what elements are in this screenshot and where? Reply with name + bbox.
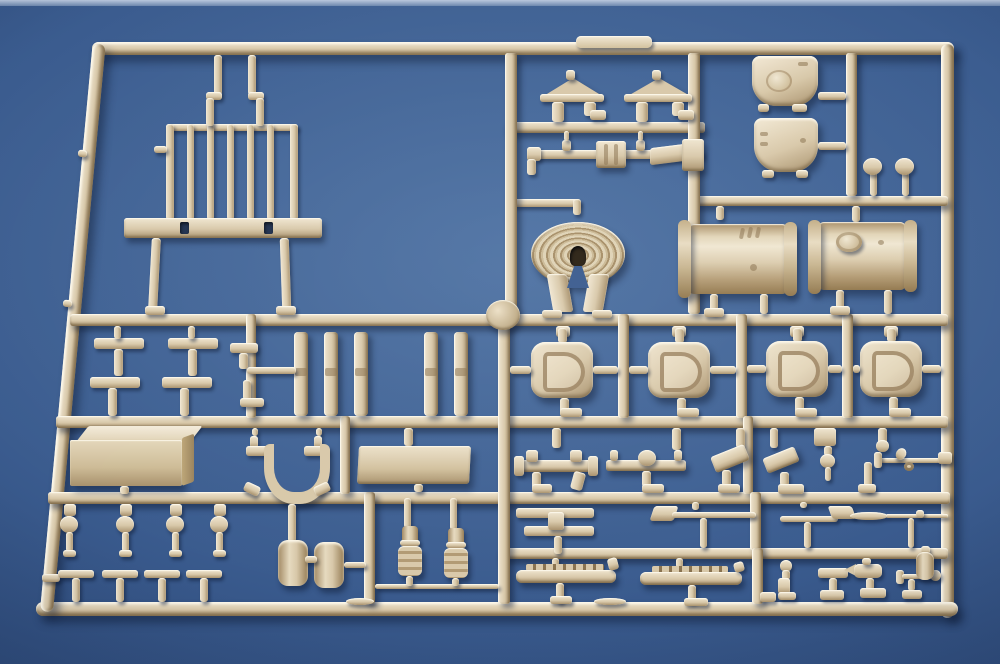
panel-bolt — [760, 142, 768, 146]
coiled-cable-reel — [530, 214, 628, 318]
roof-bracket-leg — [552, 102, 564, 122]
nozzle-fitting — [850, 562, 890, 604]
tank-rim — [678, 220, 691, 298]
rack-hook — [733, 561, 745, 573]
sprue-foot — [830, 306, 850, 315]
rack-body — [640, 572, 742, 585]
sprue-frame-top — [92, 42, 954, 55]
small-canister — [916, 546, 938, 586]
cover-d-ring — [778, 351, 820, 391]
roof-bracket-chimney — [566, 70, 575, 80]
cover-d-ring — [660, 352, 702, 392]
sprue-stub — [908, 518, 914, 548]
tee-pin-bar — [144, 570, 180, 578]
sprue-stub — [922, 365, 941, 373]
shovel-tool — [652, 508, 762, 552]
pin-shaft — [172, 532, 179, 552]
sprue-stub — [252, 428, 258, 436]
sprue-stub — [804, 522, 811, 548]
crank-rod — [880, 458, 946, 463]
toothed-rack-bar — [516, 564, 626, 608]
pin-shaft — [122, 532, 129, 552]
d-shaped-hatch-cover — [860, 341, 922, 421]
tee-pin — [58, 570, 94, 604]
sprue-stub — [793, 328, 802, 342]
nozzle-body — [854, 564, 882, 578]
roof-bracket-step — [590, 110, 606, 120]
sprue-stub — [120, 486, 129, 494]
fitting-foot — [778, 592, 796, 600]
sprue-stub — [316, 428, 322, 436]
t-lever-bar — [162, 377, 212, 388]
tee-pin-stem — [116, 578, 124, 602]
sprue-stub — [770, 428, 778, 448]
tank-rim — [808, 220, 821, 294]
pin-tip — [119, 550, 132, 557]
runner-v-divider — [498, 314, 510, 604]
runner-v-d3 — [842, 314, 853, 418]
sprue-foot — [778, 484, 804, 494]
mushroom-pin-stem — [902, 172, 909, 196]
coil-foot — [592, 310, 612, 318]
shovel-tool — [780, 506, 858, 550]
panel-foot — [796, 170, 808, 178]
shackle-foot — [243, 481, 262, 497]
sprue-rod — [344, 562, 366, 568]
handrail-sprue-arm — [256, 98, 264, 126]
roof-bracket-step — [678, 110, 694, 120]
roof-bracket-eaves — [624, 94, 692, 102]
sprue-foot — [889, 408, 911, 417]
tank-filler-cap — [836, 232, 862, 252]
sprue-stub — [450, 498, 457, 530]
pin-bracket — [120, 504, 132, 516]
tank-body — [688, 224, 788, 294]
handrail-bar — [290, 124, 298, 220]
stowage-box-front — [70, 440, 182, 486]
runner-h-topmid — [505, 122, 705, 133]
fitting-base — [902, 590, 922, 599]
mushroom-pin-head — [895, 158, 914, 175]
sprue-stub — [510, 366, 531, 374]
tee-pin-stem — [200, 578, 208, 602]
manifold-boss — [570, 450, 582, 462]
sprue-stub — [828, 365, 842, 373]
canister-body — [916, 552, 934, 580]
shock-absorber-lower — [444, 548, 468, 578]
link-strut-step — [325, 368, 337, 376]
manifold-dome — [638, 450, 656, 466]
mushroom-pin-head — [863, 158, 882, 175]
sprue-stub — [852, 206, 860, 222]
runner-v-mid-top — [505, 53, 517, 314]
valve-manifold — [518, 446, 602, 496]
small-drum — [278, 540, 308, 586]
link-strut-step — [425, 368, 437, 376]
tow-shackle — [246, 434, 330, 498]
angled-bracket — [762, 446, 800, 474]
pin-bracket — [214, 504, 226, 516]
small-drum — [314, 542, 344, 588]
curved-stowage-panel — [754, 116, 854, 182]
pin-shaft — [216, 532, 223, 552]
sprue-stub — [747, 365, 766, 373]
handrail-foot-board — [124, 218, 322, 238]
sprue-stub — [404, 498, 411, 528]
tank-rim — [904, 220, 917, 292]
fitting-base — [860, 588, 886, 598]
tee-pin-bar — [102, 570, 138, 578]
sprue-stub — [114, 326, 121, 339]
cover-d-ring — [543, 352, 585, 392]
t-lever-bar — [230, 343, 258, 353]
periscope-fitting — [778, 560, 798, 608]
rack-body — [516, 570, 616, 583]
toothed-rack-bar — [640, 566, 752, 610]
sprue-foot — [858, 484, 876, 493]
handrail-sprue-arm — [214, 55, 222, 95]
sprue-stub — [716, 206, 724, 220]
panel-foot — [758, 104, 769, 112]
t-lever-bar — [90, 377, 140, 388]
sprue-foot — [240, 398, 264, 407]
sprue-stub — [884, 290, 892, 314]
panel-bolt — [760, 132, 768, 136]
sprue-stub — [188, 326, 195, 339]
tee-pin-stem — [158, 578, 166, 602]
panel-dot — [800, 138, 806, 143]
tee-pin-bar — [186, 570, 222, 578]
manifold-post — [674, 450, 682, 461]
molded-label-tab — [576, 36, 652, 48]
sprue-stub — [593, 366, 618, 374]
sprue-foot — [684, 598, 708, 606]
pin-ball — [60, 516, 78, 533]
pin-ball — [210, 516, 228, 533]
sprue-stub — [818, 92, 846, 100]
tank-dot — [878, 240, 884, 245]
cover-d-ring — [872, 351, 914, 391]
crank-elbow — [874, 452, 882, 468]
runner-h-pinrail — [690, 196, 948, 206]
sprue-gate-bump — [346, 598, 374, 605]
tank-rim — [784, 222, 797, 296]
ball-head-pin — [212, 504, 232, 560]
sprue-foot — [560, 408, 582, 417]
crank-ring — [904, 462, 914, 471]
shovel-shaft — [672, 512, 756, 518]
nozzle-top — [862, 558, 871, 565]
valve-manifold — [606, 448, 694, 496]
d-shaped-hatch-cover — [531, 342, 593, 422]
handrail-bar — [207, 124, 214, 220]
tapered-pin-shaft — [825, 467, 831, 481]
t-lever-bar — [94, 338, 144, 349]
sprue-stub — [573, 199, 581, 215]
tee-pin-bar — [58, 570, 94, 578]
sprue-stub — [700, 518, 707, 548]
handrail-bar — [267, 124, 274, 220]
handrail-leg — [148, 238, 161, 310]
tee-pin-stem — [72, 578, 80, 602]
sprue-stub — [414, 484, 423, 492]
sprue-stub — [887, 328, 896, 342]
sprue-stub — [243, 380, 251, 400]
manifold-boss — [526, 450, 538, 462]
roof-bracket-eaves — [540, 94, 604, 102]
sprue-stub — [675, 328, 684, 343]
axle-rod-end-block — [682, 139, 704, 171]
tank-dot — [750, 264, 757, 271]
sprue-stub — [406, 576, 413, 586]
axle-rod-end-drop — [527, 159, 536, 175]
sprue-stub — [452, 578, 459, 586]
axle-rod-center-block — [596, 141, 626, 168]
backdrop-top-edge — [0, 0, 1000, 6]
sprue-foot — [642, 484, 664, 493]
d-shaped-hatch-cover — [648, 342, 710, 422]
sprue-foot — [795, 408, 817, 417]
pedal-assembly — [514, 506, 598, 554]
tee-pin — [102, 570, 138, 604]
sprue-nub — [78, 150, 88, 158]
sprue-frame-bottom — [36, 602, 958, 616]
pin-shaft — [66, 532, 73, 552]
link-strut-step — [295, 368, 307, 376]
t-lever-stem — [108, 388, 117, 416]
handrail-leg — [280, 238, 292, 310]
tank-body — [818, 222, 906, 290]
handrail-bar — [187, 124, 194, 220]
sprue-block — [814, 428, 836, 446]
sprue-stub — [818, 142, 846, 150]
runner-v-d1 — [618, 314, 629, 418]
handrail-bar — [227, 124, 234, 220]
manifold-cap — [588, 456, 598, 476]
t-lever-bar — [168, 338, 218, 349]
sprue-stub — [305, 556, 317, 563]
sprue-stub — [558, 328, 567, 343]
pin-bracket — [64, 504, 76, 516]
sprue-nub — [63, 300, 73, 308]
fuel-tank — [678, 218, 800, 322]
sprue-rod — [375, 584, 499, 589]
pin-tip — [213, 550, 226, 557]
shovel-shaft — [780, 516, 838, 522]
ball-head-pin — [168, 504, 188, 560]
round-knockout-disc — [486, 300, 520, 330]
sprue-stub — [552, 428, 561, 448]
sprue-foot — [760, 592, 776, 602]
crank-cap — [876, 440, 889, 452]
fitting-base — [820, 590, 844, 600]
link-strut-step — [455, 368, 467, 376]
runner-v-left-b — [340, 416, 350, 494]
handrail-sprue-arm — [206, 98, 214, 126]
sprue-rod — [247, 367, 296, 374]
sprue-stub — [710, 366, 736, 374]
pin-ball — [116, 516, 134, 533]
pin-tip — [63, 550, 76, 557]
handrail-bar — [166, 124, 174, 220]
panel-disc — [766, 70, 792, 92]
handrail-sprue-arm — [248, 55, 256, 95]
tee-pin — [144, 570, 180, 604]
pin-ball — [166, 516, 184, 533]
link-strut-step — [355, 368, 367, 376]
crank-lug — [938, 452, 952, 464]
d-shaped-hatch-cover — [766, 341, 828, 421]
axle-rod-knob — [636, 140, 645, 151]
axle-block-ridge — [604, 144, 608, 165]
sprue-stub — [760, 294, 768, 314]
coil-foot — [542, 310, 562, 318]
sprue-foot — [532, 484, 552, 493]
panel-foot — [792, 104, 807, 112]
t-lever-stem — [180, 388, 189, 416]
sprue-stub — [570, 471, 586, 491]
sprue-foot — [718, 484, 740, 493]
sprue-foot — [704, 308, 724, 317]
axle-rod-knob — [562, 140, 571, 151]
handrail-side-stub — [154, 146, 167, 153]
ball-head-pin — [118, 504, 138, 560]
foot-board-slot — [264, 222, 273, 234]
tee-pin — [186, 570, 222, 604]
coil-keyhole — [570, 246, 586, 266]
sprue-stub — [404, 428, 413, 446]
sprue-photo — [0, 0, 1000, 664]
fuel-tank — [808, 220, 918, 320]
pickaxe-knob — [916, 510, 924, 518]
t-lever-stem — [239, 353, 248, 369]
t-lever-stem — [114, 349, 123, 376]
axle-rod-wedge — [650, 144, 686, 165]
runner-v-d2 — [736, 314, 747, 418]
sprue-stub — [564, 131, 569, 141]
sprue-foot — [550, 596, 572, 604]
pedal-center — [548, 512, 564, 530]
sprue-stub — [672, 428, 681, 450]
roof-bracket-leg — [636, 102, 648, 122]
ball-head-pin — [62, 504, 82, 560]
sprue-stub — [554, 536, 562, 554]
panel-foot — [762, 170, 774, 178]
roof-bracket-chimney — [652, 70, 661, 80]
manifold-cap — [514, 456, 524, 476]
sprue-stub — [853, 365, 860, 373]
sprue-stub — [629, 366, 648, 374]
curved-stowage-panel — [752, 56, 852, 116]
manifold-post — [610, 450, 618, 461]
axle-block-ridge — [614, 144, 618, 165]
pin-bracket — [170, 504, 182, 516]
runner-v-left-c — [364, 492, 375, 604]
pin-tip — [169, 550, 182, 557]
sprue-stub — [638, 131, 643, 141]
stowage-box-side — [182, 434, 194, 486]
rack-hook — [607, 557, 620, 571]
panel-notch — [798, 62, 808, 66]
handrail-leg-foot — [276, 306, 296, 315]
mushroom-pin-stem — [870, 172, 877, 196]
handrail-leg-foot — [145, 306, 165, 315]
pickaxe-head — [850, 512, 888, 520]
shock-absorber-lower — [398, 546, 422, 576]
tapered-pin-head — [820, 454, 835, 468]
t-lever-stem — [188, 349, 197, 376]
mounting-plate — [357, 446, 471, 484]
sprue-stub — [288, 504, 296, 542]
foot-board-slot — [180, 222, 189, 234]
sprue-foot — [677, 408, 699, 417]
handrail-bar — [247, 124, 254, 220]
runner-coil-hanger — [508, 199, 580, 207]
